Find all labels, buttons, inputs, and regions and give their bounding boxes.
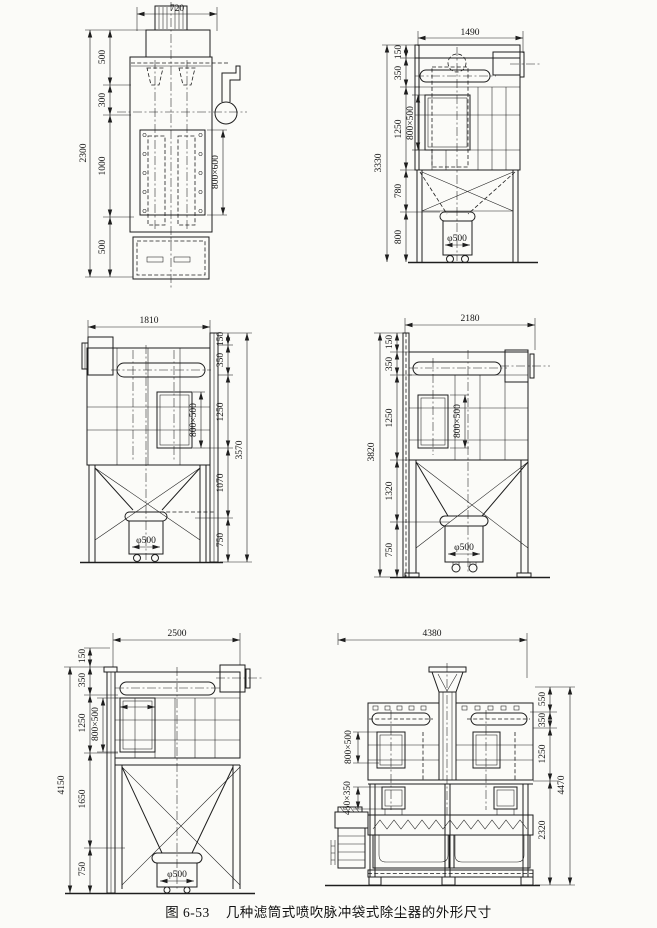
clean-air-plenum <box>146 30 210 57</box>
support-frame <box>89 465 206 562</box>
dust-cart: φ500 <box>440 516 488 572</box>
d5-cart-dia-label: φ500 <box>167 870 187 880</box>
main-casing <box>415 45 520 170</box>
pulse-air-tank <box>111 363 211 377</box>
pulse-air-tank <box>115 682 221 695</box>
outlet-flange <box>216 665 262 692</box>
d4-cart-dia-label: φ500 <box>454 543 474 553</box>
d3-cart-dia-label: φ500 <box>136 536 156 546</box>
drawing-unit-1810: φ500 1810 3570 150 350 1250 1070 750 800… <box>55 300 355 610</box>
d5-seg2-label: 350 <box>78 673 88 688</box>
d1-overall-label: 2300 <box>79 143 89 162</box>
drawing-unit-720: 720 2300 500 300 1000 500 800×600 <box>55 0 335 300</box>
d6-lower-door-label: 450×350 <box>343 781 353 815</box>
dust-cart: φ500 <box>440 212 475 263</box>
hopper <box>420 172 515 214</box>
d6-seg3-label: 1250 <box>538 744 548 763</box>
drawing-unit-1490: φ500 1490 3330 150 350 1250 780 800 800×… <box>360 15 657 300</box>
d2-overall-label: 3330 <box>374 153 384 172</box>
unit-2500-structure: φ500 <box>65 665 262 894</box>
d3-seg4-label: 1070 <box>216 473 226 492</box>
inlet-funnel <box>429 667 466 780</box>
d2-door-label: 800×500 <box>406 106 416 140</box>
d4-seg4-label: 1320 <box>385 481 395 500</box>
dust-cart: φ500 <box>125 512 167 562</box>
d6-upper-door-label: 800×500 <box>344 730 354 764</box>
d5-overall-label: 4150 <box>57 775 67 794</box>
d4-top-width-label: 2180 <box>461 314 480 324</box>
top-vent-squares <box>373 706 519 710</box>
d2-seg3-label: 1250 <box>394 119 404 138</box>
side-rail <box>403 333 409 577</box>
d1-seg2-label: 300 <box>98 93 108 108</box>
d5-dimensions: 2500 4150 150 350 1250 1650 750 800×500 <box>57 629 240 893</box>
d2-seg5-label: 800 <box>394 230 404 245</box>
d3-overall-label: 3570 <box>235 440 245 459</box>
discharge-unit <box>331 807 368 868</box>
hopper <box>122 767 233 853</box>
d5-seg3-label: 1250 <box>78 713 88 732</box>
d6-seg1-label: 550 <box>538 692 548 707</box>
outlet-flange <box>493 52 542 77</box>
d1-seg3-label: 1000 <box>98 156 108 175</box>
main-casing <box>115 672 240 758</box>
access-door <box>157 392 192 448</box>
d4-overall-label: 3820 <box>367 442 377 461</box>
d3-seg2-label: 350 <box>216 353 226 368</box>
figure-title: 几种滤筒式喷吹脉冲袋式除尘器的外形尺寸 <box>226 905 492 920</box>
d2-top-width-label: 1490 <box>461 28 480 38</box>
d1-seg1-label: 500 <box>98 50 108 65</box>
d1-seg4-label: 500 <box>98 240 108 255</box>
d6-seg2-label: 350 <box>538 713 548 728</box>
d2-seg1-label: 150 <box>394 45 404 60</box>
d1-top-width-label: 720 <box>170 4 185 14</box>
d3-door-label: 800×500 <box>189 403 199 437</box>
fan-and-elbow-pipe <box>215 66 240 124</box>
d5-seg1-label: 150 <box>78 649 88 664</box>
d3-seg3-label: 1250 <box>216 402 226 421</box>
d5-door-label: 800×500 <box>91 707 101 741</box>
d4-seg2-label: 350 <box>385 357 395 372</box>
figure-page: 720 2300 500 300 1000 500 800×600 <box>0 0 657 928</box>
d6-top-width-label: 4380 <box>423 629 442 639</box>
pulse-air-tank <box>409 362 507 375</box>
d6-seg4-label: 2320 <box>538 820 548 839</box>
d2-cart-dia-label: φ500 <box>447 234 467 244</box>
d5-seg4-label: 1650 <box>78 789 88 808</box>
drawing-unit-4380: 4380 4470 550 350 1250 2320 800×500 450×… <box>325 615 657 915</box>
unit-4380-structure <box>325 663 540 886</box>
hopper <box>416 462 528 516</box>
d5-top-width-label: 2500 <box>168 629 187 639</box>
d4-door-label: 800×500 <box>453 404 463 438</box>
unit-2180-structure: φ500 <box>390 333 550 578</box>
pulse-air-tanks <box>369 713 530 725</box>
d3-seg5-label: 750 <box>216 533 226 548</box>
d6-overall-label: 4470 <box>557 775 567 794</box>
access-door <box>120 698 155 752</box>
d4-seg3-label: 1250 <box>385 408 395 427</box>
drawing-unit-2180: φ500 2180 3820 150 350 1250 1320 750 800… <box>360 300 657 615</box>
d2-seg4-label: 780 <box>394 184 404 199</box>
d5-seg5-label: 750 <box>78 862 88 877</box>
figure-caption: 图 6-53几种滤筒式喷吹脉冲袋式除尘器的外形尺寸 <box>0 901 657 921</box>
unit-720-structure <box>117 2 247 290</box>
figure-number: 图 6-53 <box>165 905 210 920</box>
d2-seg2-label: 350 <box>394 66 404 81</box>
d3-seg1-label: 150 <box>216 332 226 347</box>
d4-seg1-label: 150 <box>385 335 395 350</box>
unit-1490-structure: φ500 <box>408 45 542 263</box>
d3-top-width-label: 1810 <box>140 316 159 326</box>
d4-seg5-label: 750 <box>385 543 395 558</box>
d1-door-label: 800×600 <box>211 155 221 189</box>
drawing-unit-2500: φ500 2500 4150 150 350 1250 1650 750 800… <box>40 615 350 910</box>
support-frame <box>415 170 520 262</box>
outlet-flange <box>500 350 550 382</box>
d2-dimensions: 1490 3330 150 350 1250 780 800 800×500 <box>374 28 523 262</box>
d4-dimensions: 2180 3820 150 350 1250 1320 750 800×500 <box>367 314 535 577</box>
lower-tank <box>373 835 530 868</box>
